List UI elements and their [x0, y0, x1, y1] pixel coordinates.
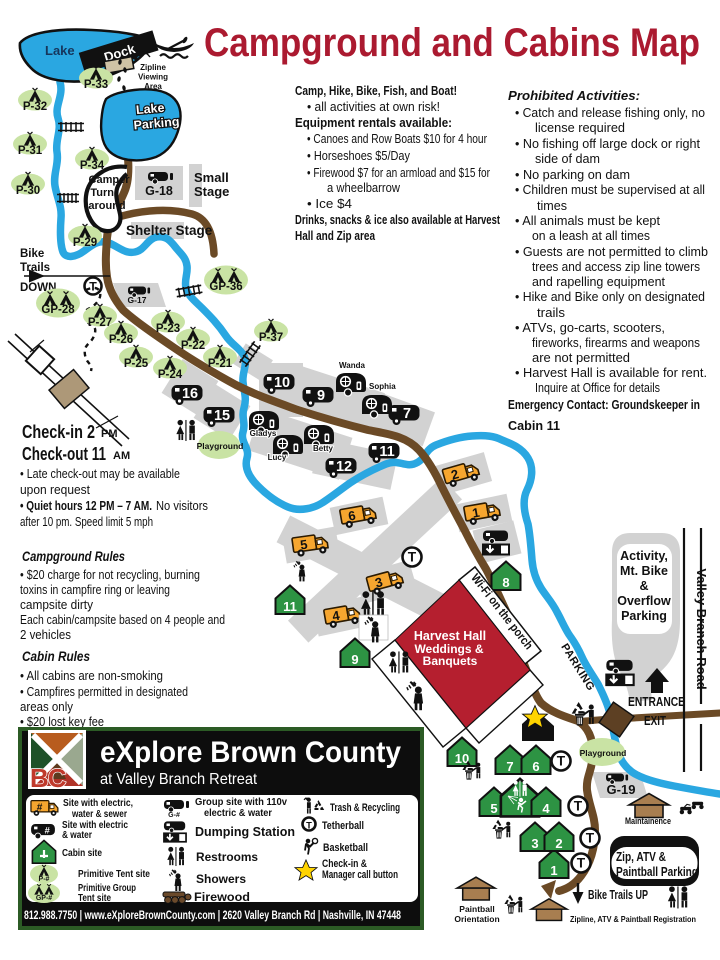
svg-text:Drinks, snacks & ice also: Drinks, snacks & ice also available at H… — [295, 213, 501, 227]
svg-text:AM: AM — [113, 450, 130, 462]
svg-text:P-33: P-33 — [84, 79, 108, 91]
svg-text:Camper: Camper — [89, 174, 131, 186]
svg-text:Check-out 11: Check-out 11 — [22, 443, 106, 464]
svg-text:• Guests are not permitte: • Guests are not permitted to climb — [515, 245, 708, 259]
svg-text:Shelter Stage: Shelter Stage — [126, 223, 213, 238]
svg-text:trails: trails — [537, 306, 565, 320]
svg-text:Cabin site: Cabin site — [62, 847, 102, 859]
svg-text:• Children must be supervise: • Children must be supervised at all — [515, 183, 705, 197]
svg-text:Stage: Stage — [194, 184, 229, 199]
svg-text:2 vehicles: 2 vehicles — [20, 627, 71, 642]
svg-text:T: T — [306, 820, 312, 831]
svg-text:GP-36: GP-36 — [209, 281, 242, 293]
svg-text:Harvest Hall: Harvest Hall — [414, 629, 486, 643]
svg-text:P-21: P-21 — [208, 358, 233, 370]
svg-text:8: 8 — [502, 575, 509, 590]
svg-text:G-19: G-19 — [607, 782, 636, 797]
svg-text:G-#: G-# — [168, 812, 180, 819]
svg-text:T: T — [586, 831, 595, 846]
svg-text:Parking: Parking — [621, 609, 667, 623]
svg-text:• Horseshoes $5/Day: • Horseshoes $5/Day — [307, 149, 411, 163]
svg-text:campsite dirty: campsite dirty — [20, 597, 93, 612]
svg-text:T: T — [577, 856, 586, 871]
svg-text:P-31: P-31 — [18, 145, 43, 157]
svg-text:Zipline: Zipline — [140, 63, 166, 72]
svg-text:on a leash at all times: on a leash at all times — [532, 229, 650, 243]
svg-text:15: 15 — [214, 408, 230, 424]
svg-text:BC: BC — [30, 763, 67, 793]
svg-text:Prohibited Activities:: Prohibited Activities: — [508, 88, 640, 103]
svg-text:P-#: P-# — [39, 876, 50, 883]
svg-text:Restrooms: Restrooms — [196, 850, 258, 864]
svg-text:• Catch and release fishing: • Catch and release fishing only, no — [515, 106, 705, 120]
svg-text:11: 11 — [379, 444, 394, 460]
svg-text:fireworks, firearms and weapon: fireworks, firearms and weapons — [532, 336, 700, 350]
svg-text:side of dam: side of dam — [535, 152, 600, 166]
svg-text:Campground Rules: Campground Rules — [22, 549, 125, 564]
svg-text:Activity,: Activity, — [620, 549, 668, 563]
svg-text:Trash & Recycling: Trash & Recycling — [330, 802, 400, 814]
svg-text:at Valley Branch Retreat: at Valley Branch Retreat — [100, 771, 258, 788]
svg-text:Firewood: Firewood — [194, 890, 250, 904]
svg-text:Check-in 2: Check-in 2 — [22, 421, 95, 442]
svg-text:around: around — [88, 200, 125, 212]
svg-text:10: 10 — [274, 375, 290, 391]
svg-text:Cabin 11: Cabin 11 — [508, 418, 560, 433]
svg-text:Zipline, ATV & Paintball Regis: Zipline, ATV & Paintball Registration — [570, 914, 696, 924]
svg-text:toxins in campfire ring or lea: toxins in campfire ring or leaving — [20, 582, 170, 597]
svg-text:Valley Branch Road: Valley Branch Road — [694, 568, 709, 689]
svg-text:ENTRANCE: ENTRANCE — [628, 695, 685, 709]
svg-text:Dumping Station: Dumping Station — [195, 825, 295, 839]
svg-text:Basketball: Basketball — [323, 842, 368, 854]
svg-text:• $20 charge for not recycling: • $20 charge for not recycling, burning — [20, 567, 200, 582]
svg-text:3: 3 — [531, 836, 538, 851]
svg-text:Tetherball: Tetherball — [322, 820, 364, 832]
svg-text:812.988.7750 | www.eXploreBrow: 812.988.7750 | www.eXploreBrownCounty.co… — [24, 910, 401, 922]
svg-text:after 10 pm. Speed limit 5 mph: after 10 pm. Speed limit 5 mph — [20, 514, 153, 529]
svg-text:Betty: Betty — [313, 444, 334, 453]
svg-text:Playground: Playground — [197, 441, 244, 451]
svg-text:• ATVs, go-carts, scooters,: • ATVs, go-carts, scooters, — [515, 321, 665, 335]
svg-text:• Hike and Bike only on desi: • Hike and Bike only on designated — [515, 290, 705, 304]
svg-text:Lake: Lake — [135, 101, 165, 117]
svg-text:Each cabin/campsite based on 4: Each cabin/campsite based on 4 people an… — [20, 612, 225, 627]
svg-text:EXIT: EXIT — [644, 714, 666, 728]
svg-text:Primitive Tent site: Primitive Tent site — [78, 868, 150, 880]
svg-text:areas only: areas only — [20, 699, 73, 714]
svg-text:P-26: P-26 — [109, 334, 133, 346]
svg-text:2: 2 — [555, 836, 562, 851]
svg-text:11: 11 — [283, 599, 297, 614]
svg-text:Playground: Playground — [580, 748, 627, 758]
svg-text:GP-28: GP-28 — [41, 304, 75, 316]
svg-text:• All animals must be kept: • All animals must be kept — [515, 214, 661, 228]
svg-text:7: 7 — [403, 406, 411, 422]
svg-text:P-24: P-24 — [158, 369, 183, 381]
svg-text:trees and access zip line towe: trees and access zip line towers — [532, 260, 700, 274]
svg-text:Bike: Bike — [20, 248, 44, 260]
svg-text:G-18: G-18 — [145, 184, 173, 198]
svg-text:P-22: P-22 — [181, 340, 205, 352]
svg-text:Paintball: Paintball — [459, 904, 494, 914]
svg-text:#: # — [45, 825, 51, 835]
svg-text:Banquets: Banquets — [423, 654, 478, 668]
svg-text:• Firewood $7 for an armload: • Firewood $7 for an armload and $15 for — [307, 166, 490, 180]
svg-text:• $20 lost key fee: • $20 lost key fee — [20, 714, 104, 729]
svg-text:Orientation: Orientation — [454, 914, 499, 924]
svg-text:&: & — [639, 579, 648, 593]
svg-text:Bike Trails UP: Bike Trails UP — [588, 887, 648, 902]
svg-text:a wheelbarrow: a wheelbarrow — [327, 181, 401, 195]
svg-text:• Campfires permitted in desig: • Campfires permitted in designated — [20, 684, 188, 699]
svg-text:P-29: P-29 — [73, 237, 97, 249]
svg-text:Campground and Cabins Map: Campground and Cabins Map — [204, 21, 700, 65]
svg-text:Inquire at Office for details: Inquire at Office for details — [535, 381, 660, 395]
svg-text:T: T — [574, 799, 583, 814]
svg-text:6: 6 — [532, 759, 539, 774]
svg-text:• No fishing off large dock: • No fishing off large dock or right — [515, 137, 701, 151]
svg-text:upon request: upon request — [20, 482, 90, 497]
svg-text:Wanda: Wanda — [339, 361, 365, 370]
svg-text:No visitors: No visitors — [156, 498, 208, 513]
svg-text:T: T — [557, 754, 566, 769]
svg-text:Sophia: Sophia — [369, 382, 396, 391]
svg-text:Viewing: Viewing — [138, 73, 168, 82]
svg-text:Mt. Bike: Mt. Bike — [620, 564, 668, 578]
svg-text:Gladys: Gladys — [250, 429, 277, 438]
svg-text:eXplore Brown County: eXplore Brown County — [100, 736, 401, 769]
svg-text:electric & water: electric & water — [204, 807, 272, 819]
svg-text:P-32: P-32 — [23, 101, 47, 113]
svg-text:• all activities at own risk!: • all activities at own risk! — [307, 100, 440, 114]
svg-text:5: 5 — [490, 801, 497, 816]
svg-text:16: 16 — [182, 386, 198, 402]
svg-text:Tent site: Tent site — [78, 892, 111, 904]
svg-text:P-34: P-34 — [80, 160, 105, 172]
svg-text:12: 12 — [336, 459, 352, 475]
svg-text:• All cabins are non-smoking: • All cabins are non-smoking — [20, 668, 163, 683]
svg-text:T: T — [408, 550, 417, 565]
svg-text:• No parking on dam: • No parking on dam — [515, 168, 630, 182]
svg-text:PM: PM — [101, 428, 118, 440]
svg-text:P-30: P-30 — [16, 185, 40, 197]
svg-text:1: 1 — [550, 863, 557, 878]
svg-text:Maintainence: Maintainence — [625, 816, 671, 826]
svg-text:Overflow: Overflow — [617, 594, 671, 608]
svg-text:P-23: P-23 — [156, 323, 180, 335]
svg-text:4: 4 — [542, 801, 550, 816]
svg-text:Manager call button: Manager call button — [322, 869, 398, 881]
svg-text:9: 9 — [351, 652, 358, 667]
svg-text:#: # — [37, 802, 43, 813]
svg-text:Cabin Rules: Cabin Rules — [22, 649, 90, 664]
svg-text:• Quiet hours 12 PM – 7 AM.: • Quiet hours 12 PM – 7 AM. — [20, 498, 152, 513]
svg-text:7: 7 — [506, 759, 513, 774]
svg-text:G-17: G-17 — [128, 295, 147, 305]
svg-text:and rapelling equipment: and rapelling equipment — [532, 275, 666, 289]
svg-text:9: 9 — [317, 388, 325, 404]
svg-text:Zip, ATV &: Zip, ATV & — [616, 850, 666, 864]
svg-text:• Harvest Hall is available: • Harvest Hall is available for rent. — [515, 366, 707, 380]
svg-text:license required: license required — [535, 121, 625, 135]
svg-text:Showers: Showers — [196, 872, 246, 886]
svg-text:• Late check-out may be availa: • Late check-out may be available — [20, 466, 180, 481]
svg-text:Hall and Zip area: Hall and Zip area — [295, 229, 376, 243]
svg-text:GP-#: GP-# — [36, 895, 52, 902]
svg-text:are not permitted: are not permitted — [532, 351, 630, 365]
svg-text:T: T — [89, 280, 97, 294]
svg-text:Small: Small — [194, 170, 229, 185]
svg-text:• Canoes and Row Boats $10 f: • Canoes and Row Boats $10 for 4 hour — [307, 132, 487, 146]
svg-text:• Ice $4: • Ice $4 — [307, 197, 352, 211]
svg-text:Emergency Contact: Groundskeep: Emergency Contact: Groundskeeper in — [508, 397, 700, 412]
svg-text:Camp, Hike, Bike, Fish, and Bo: Camp, Hike, Bike, Fish, and Boat! — [295, 84, 457, 98]
svg-text:Paintball Parking: Paintball Parking — [616, 865, 698, 879]
svg-text:Lucy: Lucy — [268, 453, 287, 462]
svg-text:P-37: P-37 — [259, 332, 283, 344]
svg-text:Equipment rentals available:: Equipment rentals available: — [295, 116, 452, 130]
svg-text:& water: & water — [62, 829, 92, 841]
svg-text:times: times — [537, 199, 567, 213]
svg-text:P-25: P-25 — [124, 358, 149, 370]
svg-text:Turn-: Turn- — [90, 187, 118, 199]
svg-text:Lake: Lake — [45, 43, 75, 58]
